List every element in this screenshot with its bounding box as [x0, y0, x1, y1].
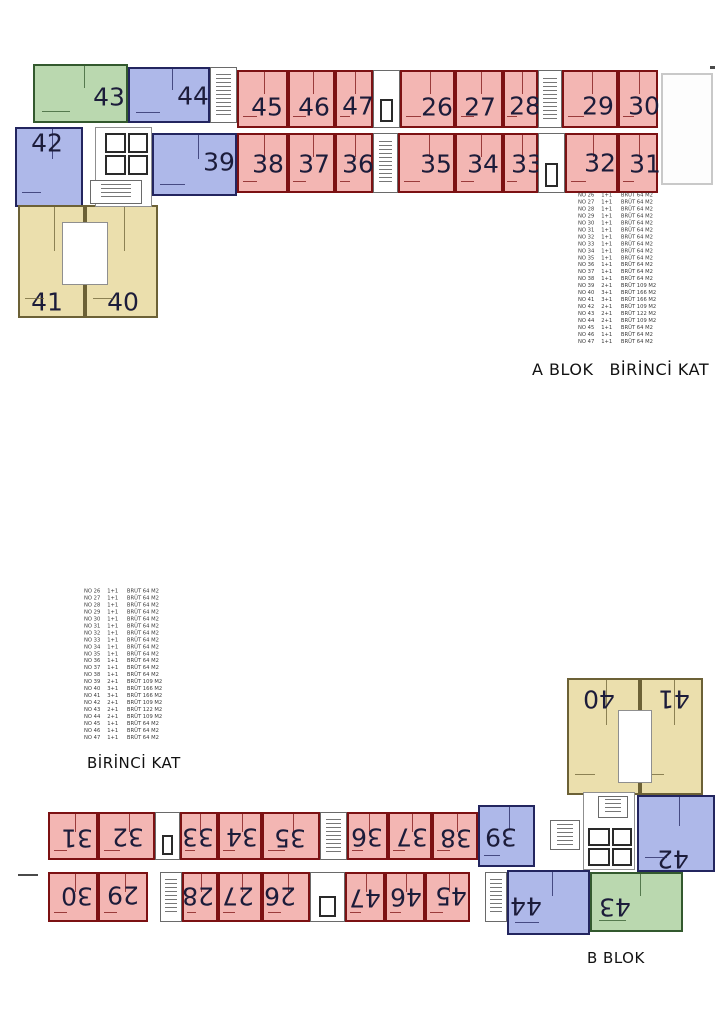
legend-size: BRÜT 64 M2 [621, 193, 665, 198]
legend-size: BRÜT 64 M2 [621, 228, 665, 233]
legend-no: NO 41 [578, 297, 601, 302]
unit-b-29: 29 [98, 872, 148, 922]
elevator-shaft [105, 155, 126, 175]
unit-number: 45 [435, 884, 467, 909]
unit-b-46: 46 [385, 872, 425, 922]
unit-number: 36 [351, 825, 383, 850]
legend-no: NO 31 [84, 624, 107, 629]
legend-row: NO 471+1BRÜT 64 M2 [84, 734, 171, 741]
legend-no: NO 36 [578, 262, 601, 267]
legend-row: NO 451+1BRÜT 64 M2 [84, 720, 171, 727]
unit-b-39: 39 [478, 805, 535, 867]
plan-mark [710, 66, 715, 69]
unit-a-33: 33 [503, 133, 538, 193]
unit-b-43: 43 [590, 872, 683, 932]
legend-no: NO 27 [84, 596, 107, 601]
unit-b-45: 45 [425, 872, 470, 922]
unit-a-27: 27 [455, 70, 503, 128]
legend-row: NO 321+1BRÜT 64 M2 [578, 234, 665, 241]
legend-size: BRÜT 64 M2 [621, 242, 665, 247]
unit-number: 31 [61, 826, 93, 851]
legend-type: 1+1 [601, 235, 621, 240]
unit-a-38: 38 [237, 133, 288, 193]
unit-number: 29 [582, 94, 614, 119]
unit-b-32: 32 [98, 812, 155, 860]
legend-type: 1+1 [107, 589, 127, 594]
legend-row: NO 271+1BRÜT 64 M2 [84, 595, 171, 602]
unit-a-42: 42 [15, 127, 83, 207]
legend-type: 1+1 [107, 603, 127, 608]
legend-no: NO 36 [84, 658, 107, 663]
stairs-core [485, 872, 507, 922]
legend-size: BRÜT 64 M2 [127, 665, 171, 670]
legend-type: 1+1 [107, 658, 127, 663]
legend-row: NO 413+1BRÜT 166 M2 [578, 296, 665, 303]
legend-size: BRÜT 166 M2 [621, 290, 665, 295]
legend-type: 1+1 [107, 721, 127, 726]
b-blok-title: B BLOK [587, 949, 645, 967]
legend-type: 2+1 [601, 318, 621, 323]
unit-number: 36 [342, 152, 374, 177]
unit-number: 26 [264, 884, 296, 909]
legend-row: NO 281+1BRÜT 64 M2 [84, 602, 171, 609]
legend-type: 1+1 [601, 242, 621, 247]
legend-size: BRÜT 64 M2 [621, 256, 665, 261]
legend-size: BRÜT 64 M2 [621, 262, 665, 267]
legend-no: NO 39 [84, 679, 107, 684]
legend-type: 1+1 [601, 214, 621, 219]
unit-a-45: 45 [237, 70, 288, 128]
elevator-core [538, 133, 565, 193]
unit-number: 28 [509, 94, 541, 119]
unit-b-36: 36 [347, 812, 388, 860]
legend-no: NO 26 [578, 193, 601, 198]
legend-type: 1+1 [107, 610, 127, 615]
elevator-shaft [612, 828, 632, 846]
legend-type: 1+1 [107, 624, 127, 629]
legend-row: NO 442+1BRÜT 109 M2 [578, 317, 665, 324]
unit-number: 37 [396, 825, 428, 850]
legend-size: BRÜT 109 M2 [127, 679, 171, 684]
legend-type: 2+1 [601, 311, 621, 316]
elevator-shaft [105, 133, 126, 153]
unit-number: 30 [628, 94, 660, 119]
unit-number: 32 [584, 151, 616, 176]
elevator-shaft [128, 155, 148, 175]
unit-number: 33 [182, 825, 214, 850]
legend-row: NO 461+1BRÜT 64 M2 [578, 331, 665, 338]
legend-row: NO 432+1BRÜT 122 M2 [84, 706, 171, 713]
legend-row: NO 301+1BRÜT 64 M2 [578, 220, 665, 227]
legend-size: BRÜT 109 M2 [621, 283, 665, 288]
elevator-shaft [128, 133, 148, 153]
legend-row: NO 403+1BRÜT 166 M2 [84, 685, 171, 692]
unit-a-44: 44 [128, 67, 210, 123]
legend-table-left: NO 261+1BRÜT 64 M2NO 271+1BRÜT 64 M2NO 2… [84, 588, 171, 741]
stairs-core [160, 872, 182, 922]
unit-number: 44 [177, 84, 209, 109]
legend-no: NO 43 [578, 311, 601, 316]
legend-type: 1+1 [601, 200, 621, 205]
unit-b-31: 31 [48, 812, 98, 860]
legend-no: NO 37 [578, 269, 601, 274]
legend-size: BRÜT 64 M2 [127, 728, 171, 733]
unit-a-34: 34 [455, 133, 503, 193]
legend-row: NO 371+1BRÜT 64 M2 [84, 665, 171, 672]
legend-size: BRÜT 64 M2 [621, 207, 665, 212]
unit-a-29: 29 [562, 70, 618, 128]
legend-table-top: NO 261+1BRÜT 64 M2NO 271+1BRÜT 64 M2NO 2… [578, 192, 665, 345]
unit-a-28: 28 [503, 70, 538, 128]
legend-no: NO 29 [84, 610, 107, 615]
legend-size: BRÜT 64 M2 [127, 603, 171, 608]
legend-type: 3+1 [601, 290, 621, 295]
legend-no: NO 28 [84, 603, 107, 608]
unit-number: 35 [274, 826, 306, 851]
legend-size: BRÜT 64 M2 [127, 658, 171, 663]
stairs-core [598, 796, 628, 818]
unit-b-38: 38 [432, 812, 478, 860]
legend-size: BRÜT 64 M2 [127, 672, 171, 677]
unit-number: 41 [31, 290, 63, 315]
legend-no: NO 30 [84, 617, 107, 622]
legend-size: BRÜT 166 M2 [127, 686, 171, 691]
service-room [618, 710, 652, 783]
legend-row: NO 351+1BRÜT 64 M2 [578, 255, 665, 262]
legend-no: NO 47 [578, 339, 601, 344]
unit-number: 34 [226, 825, 258, 850]
legend-row: NO 422+1BRÜT 109 M2 [578, 303, 665, 310]
unit-a-32: 32 [565, 133, 618, 193]
unit-number: 30 [61, 884, 93, 909]
legend-size: BRÜT 64 M2 [621, 325, 665, 330]
unit-number: 38 [252, 152, 284, 177]
legend-size: BRÜT 64 M2 [621, 249, 665, 254]
unit-a-43: 43 [33, 64, 128, 123]
legend-type: 2+1 [601, 304, 621, 309]
unit-number: 38 [440, 826, 472, 851]
legend-row: NO 271+1BRÜT 64 M2 [578, 199, 665, 206]
unit-number: 34 [467, 152, 499, 177]
legend-no: NO 45 [84, 721, 107, 726]
legend-type: 1+1 [107, 638, 127, 643]
legend-no: NO 28 [578, 207, 601, 212]
legend-size: BRÜT 109 M2 [127, 714, 171, 719]
unit-b-42: 42 [637, 795, 715, 872]
stairs-core [90, 180, 142, 204]
unit-number: 35 [420, 152, 452, 177]
legend-size: BRÜT 64 M2 [621, 269, 665, 274]
legend-row: NO 331+1BRÜT 64 M2 [578, 241, 665, 248]
unit-b-47: 47 [345, 872, 385, 922]
legend-row: NO 341+1BRÜT 64 M2 [84, 644, 171, 651]
legend-row: NO 371+1BRÜT 64 M2 [578, 269, 665, 276]
legend-type: 1+1 [601, 339, 621, 344]
legend-no: NO 35 [84, 652, 107, 657]
legend-row: NO 422+1BRÜT 109 M2 [84, 699, 171, 706]
legend-row: NO 361+1BRÜT 64 M2 [84, 658, 171, 665]
unit-a-39: 39 [152, 133, 237, 196]
unit-b-33: 33 [180, 812, 218, 860]
unit-number: 29 [107, 883, 139, 908]
unit-a-30: 30 [618, 70, 658, 128]
legend-size: BRÜT 64 M2 [621, 276, 665, 281]
unit-a-35: 35 [398, 133, 455, 193]
legend-no: NO 35 [578, 256, 601, 261]
unit-a-46: 46 [288, 70, 335, 128]
legend-size: BRÜT 64 M2 [621, 200, 665, 205]
legend-no: NO 45 [578, 325, 601, 330]
legend-row: NO 471+1BRÜT 64 M2 [578, 338, 665, 345]
legend-row: NO 351+1BRÜT 64 M2 [84, 651, 171, 658]
legend-row: NO 261+1BRÜT 64 M2 [84, 588, 171, 595]
legend-type: 3+1 [107, 693, 127, 698]
legend-type: 1+1 [601, 249, 621, 254]
legend-type: 1+1 [601, 221, 621, 226]
legend-type: 1+1 [107, 652, 127, 657]
legend-size: BRÜT 122 M2 [127, 707, 171, 712]
left-floor-title: BİRİNCİ KAT [87, 754, 181, 772]
legend-row: NO 381+1BRÜT 64 M2 [84, 672, 171, 679]
legend-no: NO 37 [84, 665, 107, 670]
legend-size: BRÜT 122 M2 [621, 311, 665, 316]
legend-no: NO 46 [578, 332, 601, 337]
legend-size: BRÜT 64 M2 [127, 624, 171, 629]
stairs-core [210, 67, 237, 123]
unit-number: 41 [658, 687, 690, 712]
unit-b-30: 30 [48, 872, 98, 922]
legend-no: NO 33 [84, 638, 107, 643]
legend-no: NO 32 [84, 631, 107, 636]
legend-size: BRÜT 64 M2 [127, 638, 171, 643]
unit-number: 47 [342, 94, 374, 119]
legend-size: BRÜT 166 M2 [127, 693, 171, 698]
legend-no: NO 47 [84, 735, 107, 740]
unit-a-47: 47 [335, 70, 373, 128]
legend-row: NO 311+1BRÜT 64 M2 [578, 227, 665, 234]
legend-no: NO 30 [578, 221, 601, 226]
legend-row: NO 461+1BRÜT 64 M2 [84, 727, 171, 734]
legend-no: NO 38 [84, 672, 107, 677]
legend-no: NO 44 [84, 714, 107, 719]
unit-number: 26 [421, 95, 453, 120]
unit-number: 43 [599, 895, 631, 920]
legend-size: BRÜT 64 M2 [127, 735, 171, 740]
unit-number: 44 [510, 894, 542, 919]
legend-no: NO 42 [578, 304, 601, 309]
unit-b-44: 44 [507, 870, 590, 935]
legend-type: 1+1 [601, 325, 621, 330]
legend-size: BRÜT 64 M2 [621, 332, 665, 337]
elevator-core [373, 70, 400, 128]
unit-a-37: 37 [288, 133, 335, 193]
legend-row: NO 403+1BRÜT 166 M2 [578, 289, 665, 296]
legend-no: NO 27 [578, 200, 601, 205]
legend-type: 1+1 [107, 596, 127, 601]
legend-no: NO 46 [84, 728, 107, 733]
legend-row: NO 261+1BRÜT 64 M2 [578, 192, 665, 199]
legend-size: BRÜT 64 M2 [127, 721, 171, 726]
legend-type: 2+1 [601, 283, 621, 288]
stairs-core [538, 70, 562, 128]
unit-b-26: 26 [262, 872, 310, 922]
legend-row: NO 291+1BRÜT 64 M2 [578, 213, 665, 220]
legend-size: BRÜT 64 M2 [127, 645, 171, 650]
unit-a-36: 36 [335, 133, 373, 193]
legend-type: 1+1 [601, 332, 621, 337]
legend-row: NO 301+1BRÜT 64 M2 [84, 616, 171, 623]
legend-type: 1+1 [601, 256, 621, 261]
legend-type: 1+1 [107, 672, 127, 677]
unit-number: 42 [657, 847, 689, 872]
legend-size: BRÜT 64 M2 [127, 610, 171, 615]
legend-row: NO 341+1BRÜT 64 M2 [578, 248, 665, 255]
legend-row: NO 291+1BRÜT 64 M2 [84, 609, 171, 616]
legend-no: NO 34 [84, 645, 107, 650]
legend-no: NO 26 [84, 589, 107, 594]
legend-size: BRÜT 64 M2 [621, 214, 665, 219]
legend-size: BRÜT 166 M2 [621, 297, 665, 302]
service-room [62, 222, 108, 285]
a-floor-label: BİRİNCİ KAT [609, 360, 709, 379]
legend-size: BRÜT 64 M2 [127, 631, 171, 636]
legend-type: 1+1 [601, 269, 621, 274]
legend-no: NO 40 [578, 290, 601, 295]
legend-size: BRÜT 64 M2 [127, 652, 171, 657]
legend-row: NO 392+1BRÜT 109 M2 [578, 282, 665, 289]
legend-row: NO 331+1BRÜT 64 M2 [84, 637, 171, 644]
unit-b-37: 37 [388, 812, 432, 860]
legend-type: 2+1 [107, 700, 127, 705]
legend-no: NO 42 [84, 700, 107, 705]
legend-type: 1+1 [107, 631, 127, 636]
unit-number: 31 [629, 152, 661, 177]
legend-size: BRÜT 64 M2 [127, 589, 171, 594]
terrace-outline [661, 73, 713, 185]
legend-no: NO 32 [578, 235, 601, 240]
unit-number: 32 [112, 825, 144, 850]
unit-number: 40 [107, 290, 139, 315]
a-blok-title: A BLOK BİRİNCİ KAT [532, 360, 709, 379]
legend-type: 3+1 [107, 686, 127, 691]
a-blok-label: A BLOK [532, 360, 593, 379]
legend-type: 3+1 [601, 297, 621, 302]
unit-number: 45 [251, 95, 283, 120]
legend-no: NO 33 [578, 242, 601, 247]
legend-row: NO 311+1BRÜT 64 M2 [84, 623, 171, 630]
legend-no: NO 29 [578, 214, 601, 219]
stairs-core [320, 812, 347, 860]
legend-row: NO 432+1BRÜT 122 M2 [578, 310, 665, 317]
legend-type: 1+1 [107, 617, 127, 622]
legend-row: NO 281+1BRÜT 64 M2 [578, 206, 665, 213]
legend-type: 2+1 [107, 714, 127, 719]
unit-number: 39 [203, 150, 235, 175]
unit-number: 37 [298, 152, 330, 177]
legend-no: NO 38 [578, 276, 601, 281]
legend-type: 1+1 [601, 276, 621, 281]
legend-type: 1+1 [601, 262, 621, 267]
legend-no: NO 44 [578, 318, 601, 323]
legend-type: 2+1 [107, 679, 127, 684]
unit-number: 27 [222, 884, 254, 909]
legend-row: NO 442+1BRÜT 109 M2 [84, 713, 171, 720]
unit-number: 39 [485, 825, 517, 850]
page: 4344454647262728293042393837363534333231… [0, 0, 724, 1024]
legend-size: BRÜT 64 M2 [621, 221, 665, 226]
elevator-shaft [588, 828, 610, 846]
unit-a-31: 31 [618, 133, 658, 193]
unit-a-26: 26 [400, 70, 455, 128]
unit-b-35: 35 [262, 812, 320, 860]
unit-number: 27 [464, 95, 496, 120]
legend-row: NO 381+1BRÜT 64 M2 [578, 276, 665, 283]
unit-number: 28 [182, 884, 214, 909]
plan-mark [18, 874, 38, 876]
legend-no: NO 43 [84, 707, 107, 712]
elevator-core [155, 812, 180, 860]
legend-type: 1+1 [107, 735, 127, 740]
legend-type: 1+1 [601, 207, 621, 212]
legend-size: BRÜT 64 M2 [621, 235, 665, 240]
legend-row: NO 392+1BRÜT 109 M2 [84, 678, 171, 685]
legend-row: NO 361+1BRÜT 64 M2 [578, 262, 665, 269]
elevator-shaft [588, 848, 610, 866]
legend-row: NO 451+1BRÜT 64 M2 [578, 324, 665, 331]
unit-number: 43 [93, 85, 125, 110]
legend-type: 1+1 [601, 193, 621, 198]
unit-b-28: 28 [182, 872, 218, 922]
legend-size: BRÜT 64 M2 [621, 339, 665, 344]
legend-no: NO 40 [84, 686, 107, 691]
legend-type: 1+1 [107, 728, 127, 733]
legend-no: NO 31 [578, 228, 601, 233]
unit-number: 40 [583, 687, 615, 712]
unit-number: 47 [349, 886, 381, 911]
legend-size: BRÜT 109 M2 [621, 304, 665, 309]
stairs-core [550, 820, 580, 850]
unit-b-34: 34 [218, 812, 262, 860]
legend-row: NO 321+1BRÜT 64 M2 [84, 630, 171, 637]
stairs-core [373, 133, 398, 193]
legend-row: NO 413+1BRÜT 166 M2 [84, 692, 171, 699]
unit-number: 42 [31, 131, 63, 156]
legend-type: 2+1 [107, 707, 127, 712]
legend-no: NO 41 [84, 693, 107, 698]
legend-type: 1+1 [601, 228, 621, 233]
unit-number: 46 [390, 885, 422, 910]
legend-type: 1+1 [107, 645, 127, 650]
elevator-shaft [612, 848, 632, 866]
legend-size: BRÜT 109 M2 [127, 700, 171, 705]
legend-no: NO 34 [578, 249, 601, 254]
legend-size: BRÜT 64 M2 [127, 596, 171, 601]
unit-b-27: 27 [218, 872, 262, 922]
legend-size: BRÜT 64 M2 [127, 617, 171, 622]
legend-size: BRÜT 109 M2 [621, 318, 665, 323]
elevator-core [310, 872, 345, 922]
unit-number: 46 [298, 95, 330, 120]
legend-type: 1+1 [107, 665, 127, 670]
legend-no: NO 39 [578, 283, 601, 288]
